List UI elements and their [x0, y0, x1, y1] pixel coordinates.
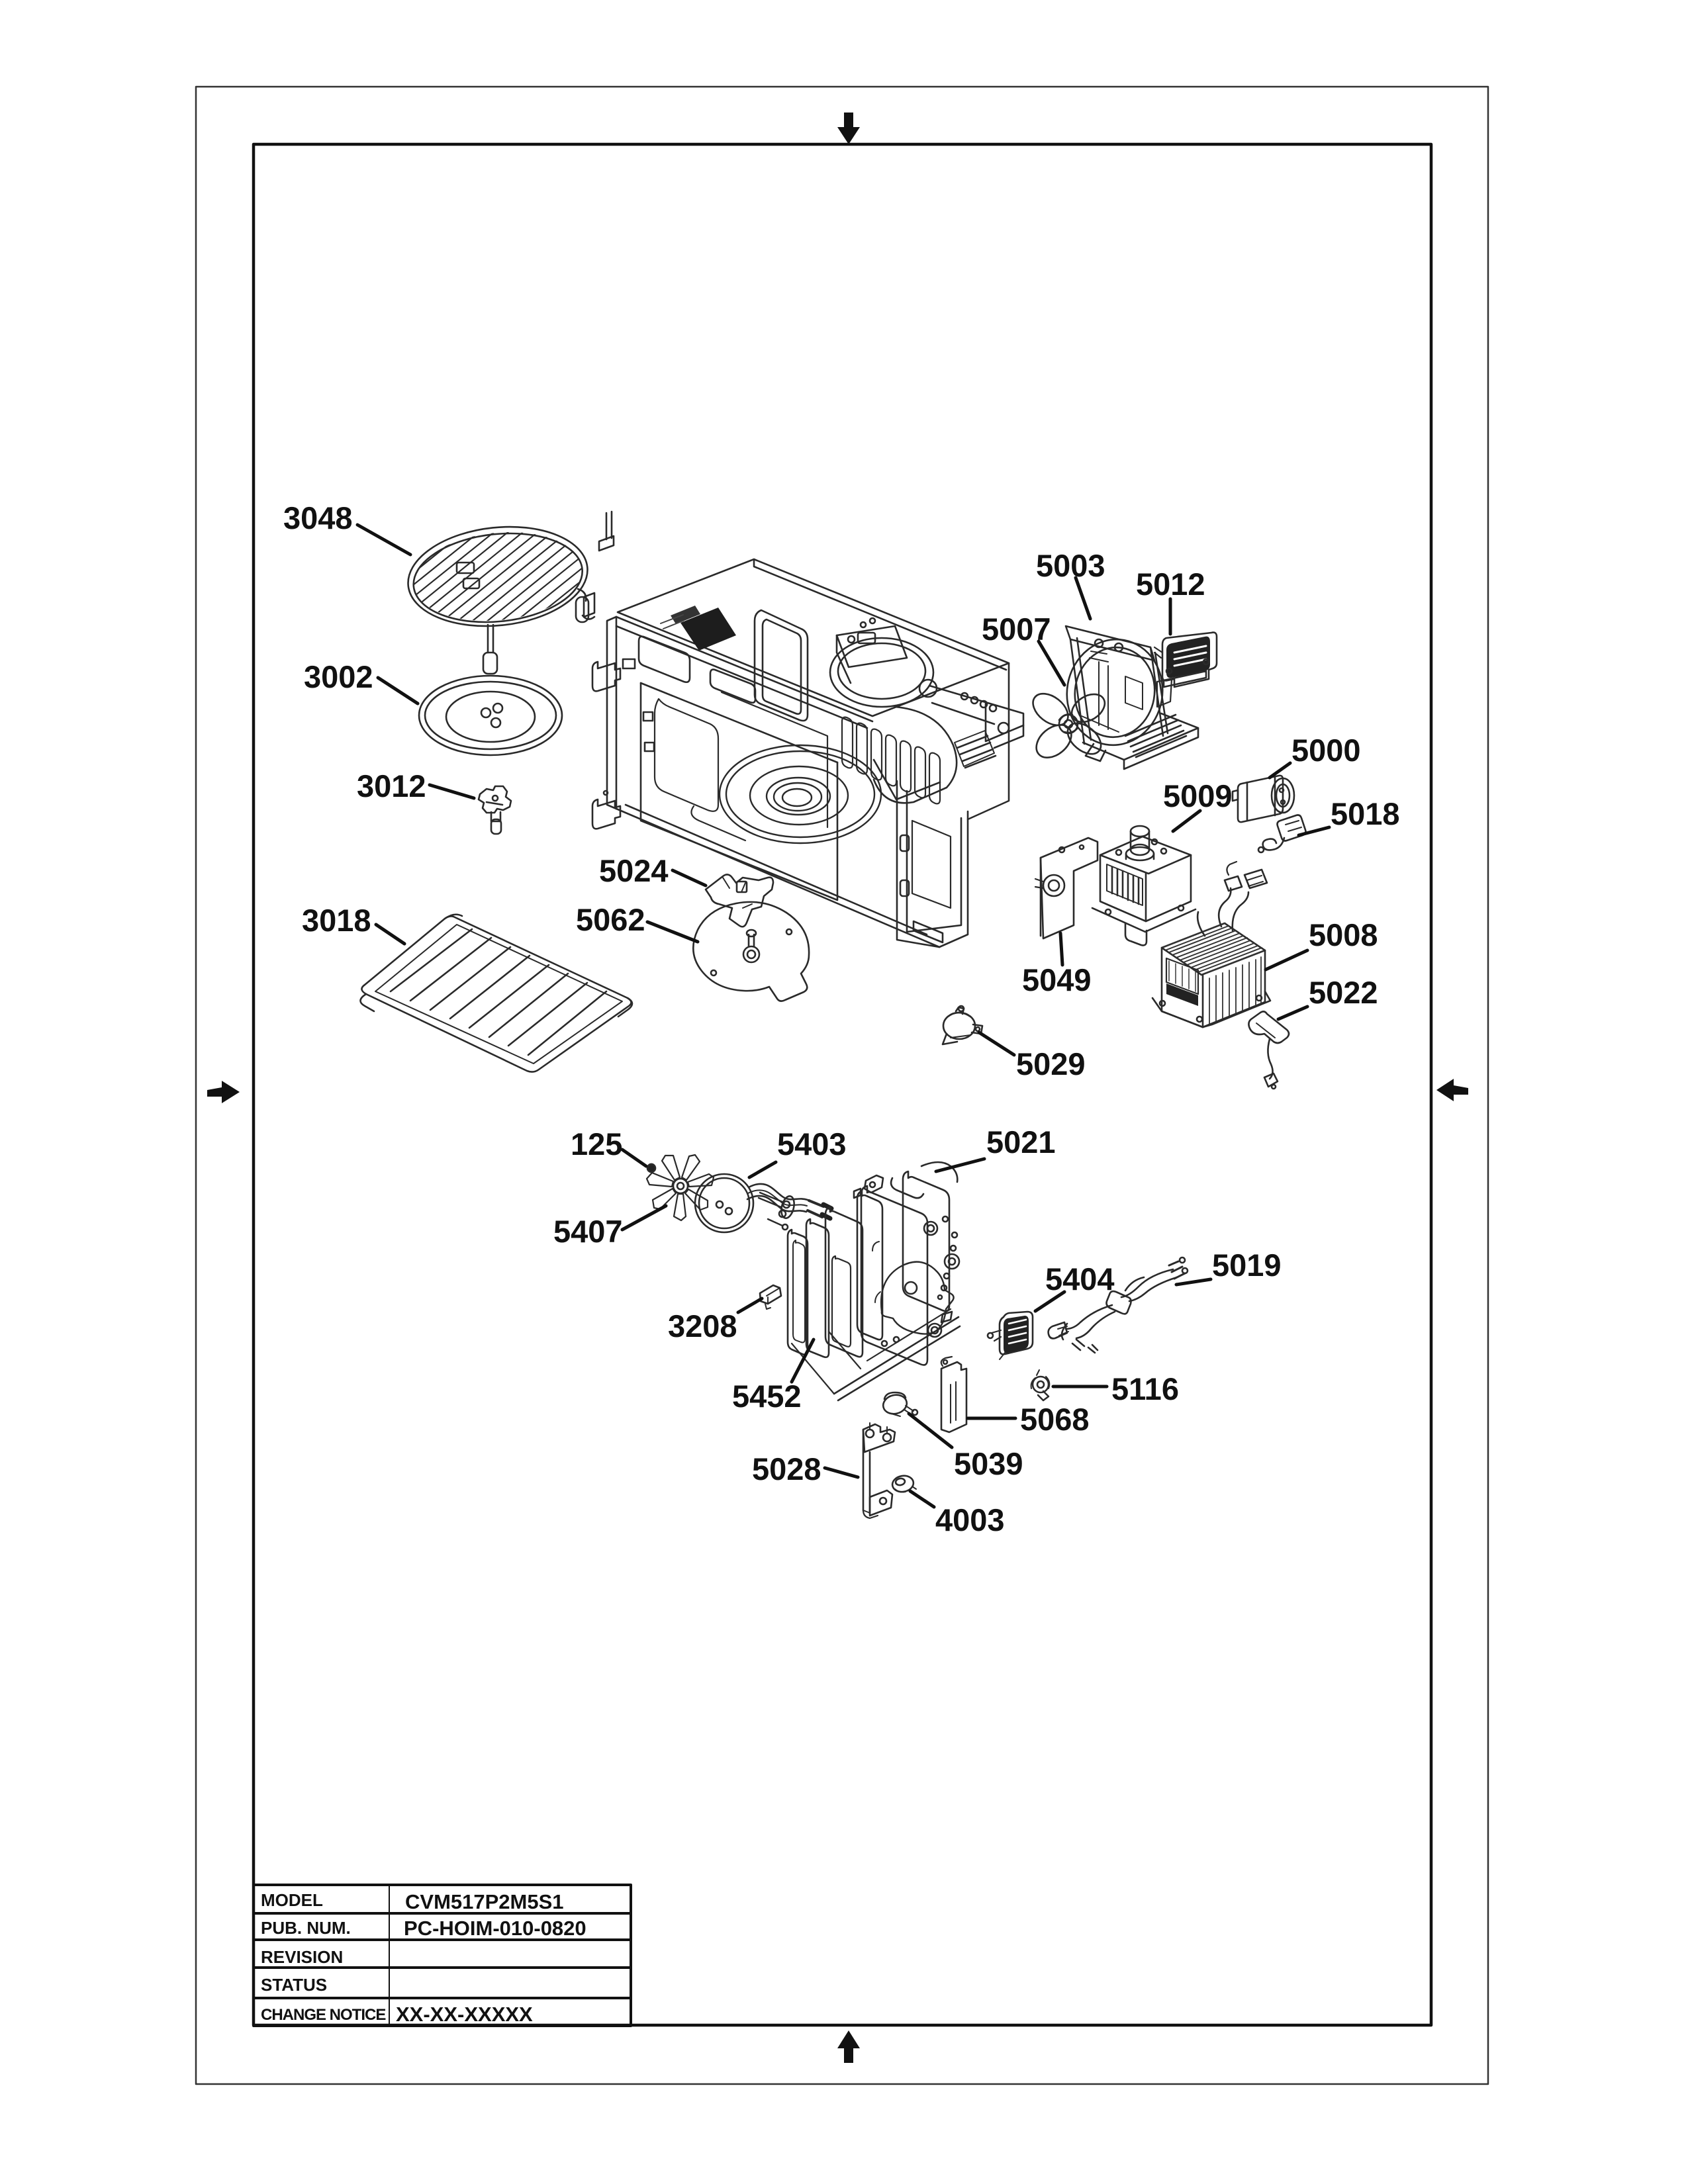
svg-text:3012: 3012 [357, 768, 426, 803]
svg-text:CHANGE NOTICE: CHANGE NOTICE [261, 2006, 386, 2024]
svg-text:5024: 5024 [599, 853, 669, 888]
svg-text:5009: 5009 [1163, 778, 1233, 813]
svg-text:XX-XX-XXXXX: XX-XX-XXXXX [396, 2003, 533, 2026]
svg-text:3018: 3018 [302, 903, 371, 938]
svg-text:5403: 5403 [777, 1126, 847, 1161]
svg-text:PUB. NUM.: PUB. NUM. [261, 1918, 351, 1938]
svg-text:5019: 5019 [1212, 1248, 1282, 1283]
svg-text:CVM517P2M5S1: CVM517P2M5S1 [405, 1890, 564, 1913]
svg-text:5012: 5012 [1136, 567, 1205, 602]
svg-text:REVISION: REVISION [261, 1947, 343, 1967]
svg-text:5039: 5039 [954, 1446, 1023, 1481]
svg-text:5000: 5000 [1291, 733, 1361, 768]
svg-text:3002: 3002 [304, 659, 373, 694]
svg-text:5022: 5022 [1309, 975, 1378, 1010]
svg-text:5028: 5028 [752, 1451, 821, 1486]
svg-text:5049: 5049 [1022, 962, 1092, 997]
svg-text:5404: 5404 [1045, 1261, 1115, 1297]
svg-text:STATUS: STATUS [261, 1975, 327, 1995]
svg-text:4003: 4003 [935, 1502, 1005, 1537]
svg-text:5029: 5029 [1016, 1046, 1086, 1081]
svg-text:5068: 5068 [1020, 1402, 1090, 1437]
svg-text:5407: 5407 [553, 1214, 623, 1249]
svg-text:PC-HOIM-010-0820: PC-HOIM-010-0820 [404, 1917, 586, 1940]
svg-text:5021: 5021 [986, 1124, 1056, 1160]
svg-text:125: 125 [571, 1126, 622, 1161]
svg-text:5116: 5116 [1111, 1371, 1179, 1406]
svg-text:MODEL: MODEL [261, 1890, 323, 1910]
svg-text:5062: 5062 [576, 902, 645, 937]
svg-text:5003: 5003 [1036, 548, 1105, 583]
svg-text:5452: 5452 [732, 1379, 802, 1414]
svg-text:5018: 5018 [1331, 796, 1400, 831]
svg-text:3208: 3208 [668, 1308, 737, 1343]
svg-text:3048: 3048 [283, 500, 353, 535]
svg-text:5008: 5008 [1309, 917, 1378, 952]
